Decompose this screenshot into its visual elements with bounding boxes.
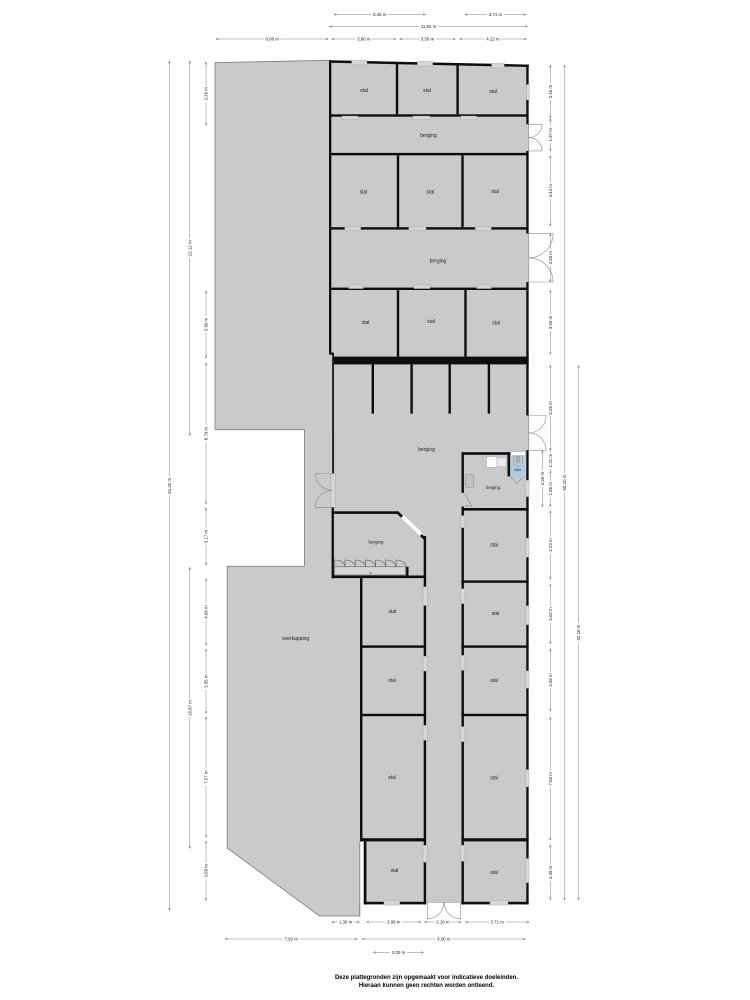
svg-text:Deze plattegronden zijn opgema: Deze plattegronden zijn opgemaakt voor i… [335, 975, 518, 981]
svg-text:overkapping: overkapping [282, 636, 309, 642]
svg-text:3.26 m: 3.26 m [540, 472, 545, 486]
svg-text:3.50 m: 3.50 m [421, 37, 435, 42]
svg-text:50.10 m: 50.10 m [562, 474, 567, 490]
svg-text:1.85 m: 1.85 m [548, 482, 553, 496]
svg-text:3.99 m: 3.99 m [548, 315, 553, 329]
svg-text:2.16 m: 2.16 m [436, 920, 450, 925]
svg-text:stal: stal [388, 678, 396, 684]
svg-text:stal: stal [427, 319, 435, 325]
svg-text:4.08 m: 4.08 m [204, 605, 209, 619]
svg-text:stal: stal [360, 88, 368, 94]
svg-text:3.49 m: 3.49 m [548, 865, 553, 879]
svg-text:11.92 m: 11.92 m [421, 24, 437, 29]
svg-text:3.36 m: 3.36 m [204, 87, 209, 101]
svg-text:stal: stal [492, 321, 500, 327]
svg-text:stal: stal [362, 320, 370, 326]
svg-text:stal: stal [489, 89, 497, 95]
svg-text:3.17 m: 3.17 m [204, 529, 209, 543]
svg-text:k: k [370, 571, 372, 575]
svg-text:3.71 m: 3.71 m [489, 12, 503, 17]
svg-text:1.97 m: 1.97 m [548, 128, 553, 142]
svg-text:stal: stal [490, 678, 498, 684]
svg-text:stal: stal [427, 190, 435, 196]
svg-text:stal: stal [388, 775, 396, 781]
svg-text:stal: stal [389, 609, 397, 615]
svg-text:51.32 m: 51.32 m [167, 478, 172, 494]
svg-text:32.15 m: 32.15 m [576, 624, 581, 640]
svg-text:stal: stal [490, 870, 498, 876]
svg-text:5.46 m: 5.46 m [373, 12, 387, 17]
svg-text:toilet: toilet [514, 468, 521, 472]
svg-text:3.95 m: 3.95 m [204, 674, 209, 688]
svg-text:1.36 m: 1.36 m [339, 920, 353, 925]
svg-text:6.86 m: 6.86 m [265, 37, 279, 42]
svg-text:stal: stal [391, 868, 399, 874]
svg-text:4.22 m: 4.22 m [486, 37, 500, 42]
svg-text:stal: stal [490, 543, 498, 549]
svg-text:stal: stal [490, 776, 498, 782]
svg-text:3.71 m: 3.71 m [490, 920, 504, 925]
svg-text:7.56 m: 7.56 m [548, 772, 553, 786]
svg-text:berging: berging [430, 259, 447, 265]
svg-text:berging: berging [486, 485, 501, 490]
svg-text:1.31 m: 1.31 m [548, 454, 553, 468]
svg-text:7.37 m: 7.37 m [204, 770, 209, 784]
svg-text:stal: stal [360, 190, 368, 196]
svg-text:3.99 m: 3.99 m [387, 920, 401, 925]
svg-text:3.48 m: 3.48 m [548, 251, 553, 265]
svg-text:3.99 m: 3.99 m [204, 317, 209, 331]
svg-text:3.16 m: 3.16 m [548, 85, 553, 99]
svg-text:4.23 m: 4.23 m [548, 538, 553, 552]
svg-text:berging: berging [368, 540, 384, 545]
svg-text:stal: stal [492, 611, 500, 617]
svg-text:berging: berging [420, 133, 437, 139]
svg-text:16.87 m: 16.87 m [187, 700, 192, 716]
svg-text:berging: berging [418, 447, 435, 453]
svg-text:8.79 m: 8.79 m [204, 426, 209, 440]
svg-text:stal: stal [423, 88, 431, 94]
svg-text:3.65 m: 3.65 m [548, 673, 553, 687]
svg-text:4.43 m: 4.43 m [548, 184, 553, 198]
svg-text:7.92 m: 7.92 m [284, 937, 298, 942]
svg-text:22.12 m: 22.12 m [187, 240, 192, 256]
svg-text:stal: stal [491, 189, 499, 195]
svg-text:5.25 m: 5.25 m [548, 401, 553, 415]
svg-text:3.90 m: 3.90 m [357, 37, 371, 42]
svg-text:3.00 m: 3.00 m [392, 950, 406, 955]
svg-text:9.66 m: 9.66 m [437, 937, 451, 942]
svg-text:Hieraan kunnen geen rechten wo: Hieraan kunnen geen rechten worden ontle… [359, 983, 495, 989]
svg-text:3.62 m: 3.62 m [548, 607, 553, 621]
svg-text:3.68 m: 3.68 m [204, 864, 209, 878]
